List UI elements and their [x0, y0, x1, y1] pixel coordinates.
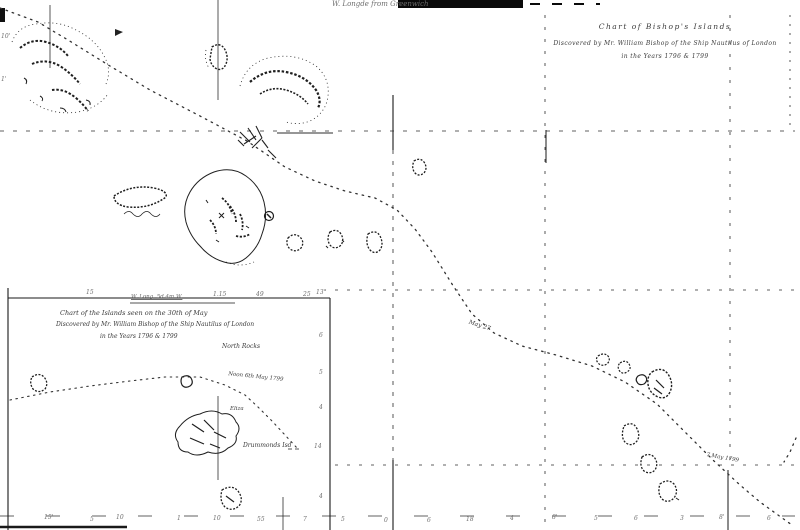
bottom-tick: 3 [680, 516, 684, 523]
flag-marker [115, 29, 123, 43]
island-north-small [205, 45, 227, 70]
bottom-tick: 6 [634, 516, 638, 523]
track-fragment [784, 438, 796, 462]
left-lat-tick: 1' [1, 77, 6, 84]
island-crescent-ne [240, 56, 328, 123]
islet-c [367, 232, 382, 253]
top-scale-bar [0, 0, 600, 22]
bottom-tick: 8' [552, 515, 557, 522]
inset-lat-tick: 14 [314, 444, 322, 451]
islet-g [659, 481, 679, 501]
inset-top-tick: 49 [256, 292, 264, 299]
chart-title: Chart of Bishop's Islands [565, 23, 765, 32]
inset-lat-tick: 13° [316, 290, 327, 297]
bottom-tick: 10 [116, 515, 124, 522]
north-rocks-label: North Rocks [222, 344, 260, 351]
bottom-tick: 6 [767, 516, 771, 523]
drummond-island-label: Drummonds Isd [243, 443, 292, 450]
inset-islet-bottom [221, 487, 241, 509]
bottom-tick: 18 [466, 517, 474, 524]
islet-b [326, 230, 344, 248]
inset-lat-tick: 5 [319, 370, 323, 377]
inset-subtitle-1: Discovered by Mr. William Bishop of the … [56, 322, 254, 329]
bottom-tick: 5 [594, 516, 598, 523]
eliza-label: Eliza [230, 406, 244, 412]
inset-title: Chart of the Islands seen on the 30th of… [60, 310, 207, 317]
island-west-long [114, 187, 166, 217]
bottom-tick: 10 [213, 516, 221, 523]
islet-d [413, 159, 426, 175]
inset-track [10, 377, 297, 448]
top-longitude-label: W. Longde from Greenwich [332, 0, 429, 8]
script-squiggle [124, 212, 160, 217]
bottom-tick: 7 [303, 517, 307, 524]
inset-top-tick: 1.15 [213, 292, 226, 299]
inset-subtitle-2: in the Years 1796 & 1799 [100, 334, 178, 341]
corner-mark [0, 8, 5, 22]
islet-cluster-east [597, 354, 672, 398]
bottom-tick: 8' [719, 515, 724, 522]
inset-top-tick: 25 [303, 292, 311, 299]
atoll-large [185, 170, 266, 265]
inset-border-label: W. Long. 5d 4m W. [131, 294, 182, 300]
inset-lat-tick: 4 [319, 494, 323, 501]
bottom-tick: 4 [510, 516, 514, 523]
bottom-tick: 0 [384, 518, 388, 525]
inset-lat-tick: 6 [319, 333, 323, 340]
inset-top-tick: 15 [86, 290, 94, 297]
left-lat-tick: 10' [1, 34, 10, 41]
chart-canvas [0, 0, 800, 530]
chart-subtitle-1: Discovered by Mr. William Bishop of the … [545, 41, 785, 48]
bottom-tick: 55 [257, 517, 265, 524]
graticule [0, 0, 795, 530]
bottom-tick: 15' [44, 515, 53, 522]
chart-subtitle-2: in the Years 1796 & 1799 [565, 54, 765, 61]
island-group-northwest [12, 23, 109, 113]
inset-lat-tick: 4 [319, 405, 323, 412]
shoal-marks [238, 126, 276, 158]
bottom-tick: 5 [341, 517, 345, 524]
islet-a [287, 235, 303, 251]
islet-e [622, 424, 638, 445]
bottom-tick: 6 [427, 518, 431, 525]
bottom-tick: 5 [90, 517, 94, 524]
inset-island-left [31, 375, 47, 392]
nautical-chart: W. Longde from Greenwich Chart of Bishop… [0, 0, 800, 530]
islet-f [641, 455, 657, 473]
bottom-tick: 1 [177, 516, 181, 523]
ship-track [0, 8, 796, 525]
